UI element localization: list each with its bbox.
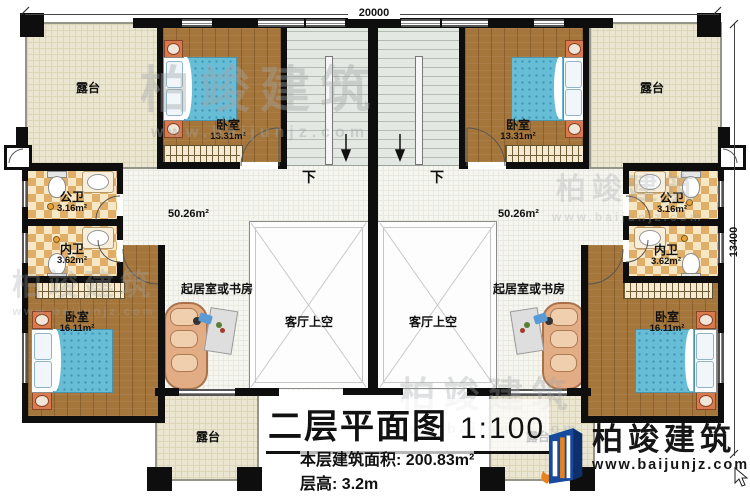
floor-height-line: 层高: 3.2m bbox=[300, 470, 378, 494]
stair-down-label-right: 下 bbox=[430, 167, 444, 187]
plan-title: 二层平面图 bbox=[268, 399, 448, 448]
room-label-public-bath-r: 公卫 3.16m² bbox=[642, 192, 702, 216]
room-label-void-l: 客厅上空 bbox=[260, 313, 358, 330]
room-label-study-l: 起居室或书房 bbox=[156, 280, 278, 297]
floor-area-label: 本层建筑面积: bbox=[300, 452, 401, 469]
dimension-top-value: 20000 bbox=[348, 7, 400, 19]
floor-height-value: 3.2m bbox=[342, 476, 378, 493]
floor-height-label: 层高: bbox=[300, 476, 337, 493]
floor-area-line: 本层建筑面积: 200.83m² bbox=[300, 446, 474, 470]
room-label-bedroom-bl: 卧室 16.11m² bbox=[46, 311, 108, 335]
stair-down-arrows bbox=[342, 134, 404, 160]
brand-site: www.baijunjz.com bbox=[592, 457, 749, 473]
hall-area-left: 50.26m² bbox=[168, 208, 209, 220]
room-label-inner-bath-r: 内卫 3.62m² bbox=[636, 244, 696, 268]
room-label-terrace-bl: 露台 bbox=[178, 428, 238, 445]
room-label-bedroom-br: 卧室 16.11m² bbox=[636, 311, 698, 335]
brand-logo-text: 柏竣建筑 www.baijunjz.com bbox=[592, 424, 749, 473]
stair-down-label-left: 下 bbox=[302, 167, 316, 187]
brand-logo-icon bbox=[536, 424, 586, 486]
brand-name: 柏竣建筑 bbox=[592, 424, 749, 457]
room-label-void-r: 客厅上空 bbox=[384, 313, 482, 330]
dimension-ticks bbox=[21, 7, 738, 458]
room-label-bedroom-tr: 卧室 13.31m² bbox=[487, 119, 549, 143]
plan-scale: 1:100 bbox=[460, 412, 545, 446]
room-label-terrace-tr: 露台 bbox=[622, 79, 682, 96]
room-label-public-bath-l: 公卫 3.16m² bbox=[42, 191, 102, 215]
brand-logo: 柏竣建筑 www.baijunjz.com bbox=[536, 424, 749, 486]
dimension-right-value: 13400 bbox=[728, 216, 740, 268]
room-label-study-r: 起居室或书房 bbox=[468, 280, 590, 297]
room-label-inner-bath-l: 内卫 3.62m² bbox=[42, 243, 102, 267]
room-label-bedroom-tl: 卧室 13.31m² bbox=[197, 119, 259, 143]
hall-area-right: 50.26m² bbox=[498, 208, 539, 220]
floor-plan-canvas: 20000 13400 露台 露台 露台 露台 卧室 13.31m² 卧室 13… bbox=[0, 0, 750, 496]
room-label-terrace-tl: 露台 bbox=[58, 79, 118, 96]
floor-area-value: 200.83m² bbox=[406, 452, 475, 469]
